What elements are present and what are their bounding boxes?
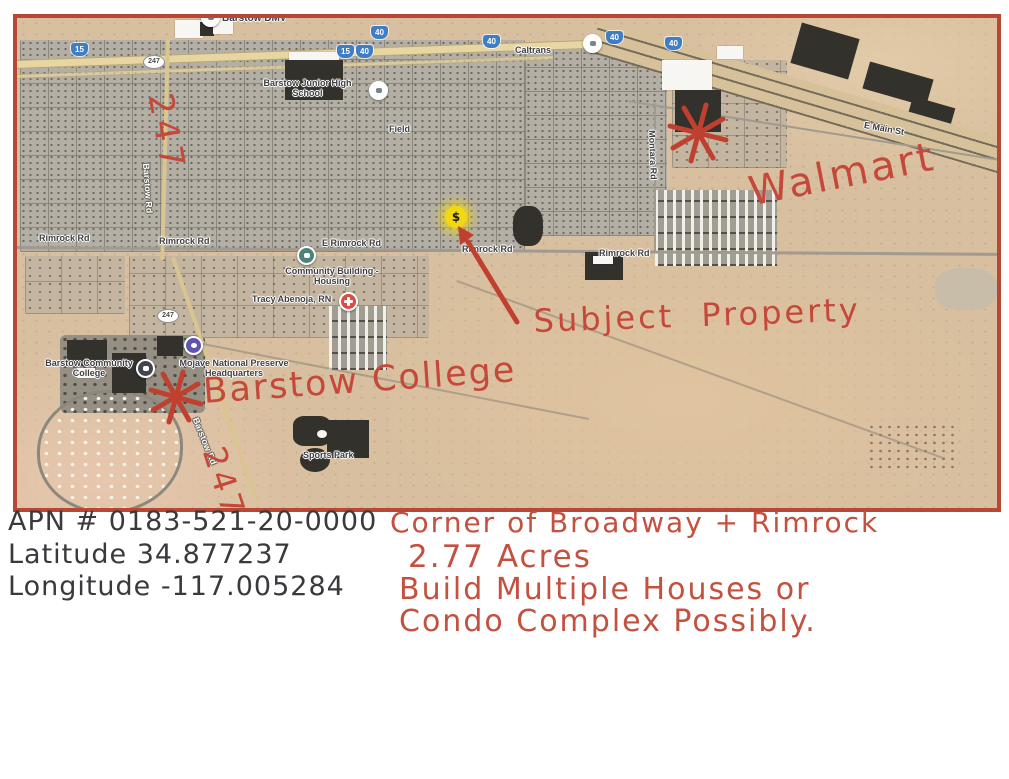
interstate-40-shield-e: 40	[665, 37, 682, 50]
medical-cross-icon	[339, 292, 358, 311]
tracy-abenoja-label: Tracy Abenoja, RN	[252, 294, 331, 304]
e-rimrock-rd-label: E Rimrock Rd	[322, 238, 381, 248]
interstate-40-shield-a: 40	[371, 26, 388, 39]
scanned-listing-page: Barstow DMV Caltrans Barstow Junior High…	[0, 0, 1009, 779]
acreage-note: 2.77 Acres	[408, 539, 592, 575]
junior-high-label: Barstow Junior High School	[260, 78, 355, 98]
caltrans-icon	[583, 34, 602, 53]
residential-southwest	[25, 256, 125, 314]
rimrock-rd-label-east2: Rimrock Rd	[599, 248, 650, 258]
route-247-shield-north: 247	[143, 55, 165, 69]
build-note-line1: Build Multiple Houses or	[399, 572, 810, 607]
city-grid-northeast	[525, 44, 667, 236]
dmv-building	[175, 20, 203, 38]
community-building-icon-glyph	[304, 253, 310, 258]
longitude-note: Longitude -117.005284	[8, 571, 345, 602]
walmart-building	[662, 60, 712, 90]
caltrans-icon-glyph	[590, 41, 596, 46]
graduation-cap-icon	[136, 359, 155, 378]
interstate-15-shield-west: 15	[71, 43, 88, 56]
community-building-icon	[297, 246, 316, 265]
campus-building-c	[157, 336, 183, 356]
graduation-cap-glyph	[143, 366, 149, 371]
sports-diamond	[317, 430, 327, 438]
route-247-shield-south: 247	[157, 309, 179, 323]
interstate-40-shield-c: 40	[483, 35, 500, 48]
desert-patch	[935, 268, 997, 310]
satellite-map: Barstow DMV Caltrans Barstow Junior High…	[13, 14, 1001, 512]
build-note-line2: Condo Complex Possibly.	[399, 604, 817, 639]
sports-park-label: Sports Park	[303, 450, 354, 460]
apn-note: APN # 0183-521-20-0000	[8, 506, 377, 537]
rimrock-rd-label-west: Rimrock Rd	[39, 233, 90, 243]
community-building-label: Community Building - Housing	[277, 266, 387, 286]
cross-horizontal	[344, 300, 353, 303]
caltrans-label: Caltrans	[515, 45, 551, 55]
community-college-label: Barstow Community College	[39, 358, 139, 378]
interstate-15-shield-center: 15	[337, 45, 354, 58]
interstate-40-shield-d: 40	[606, 31, 623, 44]
dark-lot-center	[513, 206, 543, 246]
dmv-label: Barstow DMV	[222, 14, 286, 24]
corner-note: Corner of Broadway + Rimrock	[390, 506, 879, 539]
walmart-parking	[675, 90, 721, 132]
rimrock-rd-label-center: Rimrock Rd	[159, 236, 210, 246]
dmv-icon-glyph	[208, 15, 214, 20]
road-label-fragment: d	[13, 232, 17, 242]
field-label: Field	[389, 124, 410, 134]
handwritten-route-247-south: 247	[195, 442, 254, 512]
subject-property-marker: $	[445, 206, 467, 228]
rimrock-rd-label-east1: Rimrock Rd	[462, 244, 513, 254]
walmart-outbuilding	[717, 46, 743, 59]
montara-rd-label: Montara Rd	[647, 130, 659, 180]
handwritten-subject-property: Subject Property	[533, 291, 861, 340]
railyard-building-a	[790, 23, 859, 80]
school-icon	[369, 81, 388, 100]
preserve-hq-icon	[184, 336, 203, 355]
residential-loop	[37, 390, 183, 512]
preserve-hq-icon-glyph	[191, 343, 197, 348]
latitude-note: Latitude 34.877237	[8, 539, 292, 570]
interstate-40-shield-b: 40	[356, 45, 373, 58]
school-icon-glyph	[376, 88, 382, 93]
